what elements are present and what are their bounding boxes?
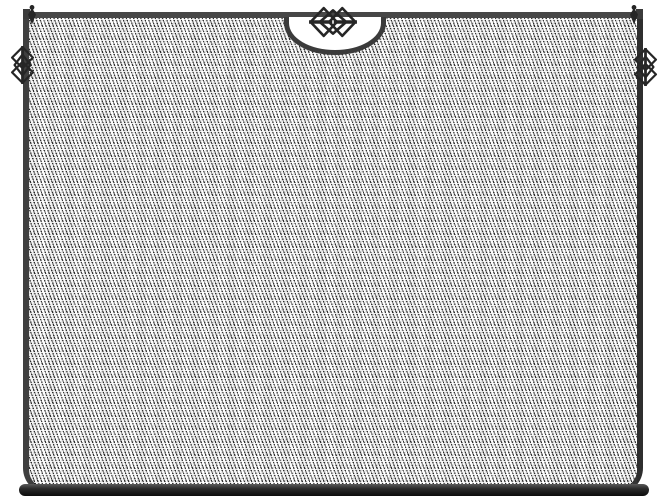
- base-bar: [19, 484, 649, 496]
- center-cage-ornament-icon: [304, 5, 362, 39]
- product-photo: [0, 0, 666, 504]
- right-finial-icon: [627, 5, 641, 25]
- wire-mesh-panel: [29, 18, 637, 488]
- left-finial-icon: [25, 5, 39, 25]
- left-cage-ornament-icon: [9, 45, 36, 85]
- fireplace-screen-frame: [23, 12, 643, 494]
- right-cage-ornament-icon: [632, 47, 659, 87]
